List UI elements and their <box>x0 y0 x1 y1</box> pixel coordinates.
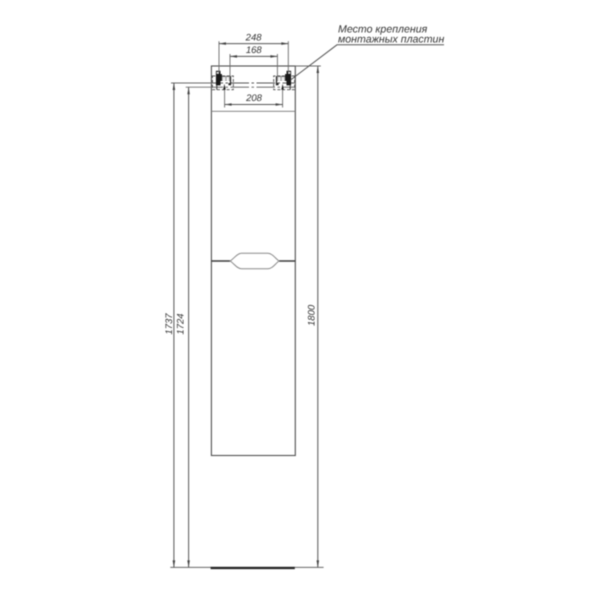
svg-text:монтажных пластин: монтажных пластин <box>338 34 444 46</box>
svg-text:208: 208 <box>245 93 263 104</box>
svg-text:1724: 1724 <box>176 313 187 334</box>
svg-text:248: 248 <box>245 32 263 43</box>
svg-text:1737: 1737 <box>164 313 175 335</box>
svg-text:168: 168 <box>246 45 263 56</box>
svg-text:1800: 1800 <box>307 304 318 326</box>
